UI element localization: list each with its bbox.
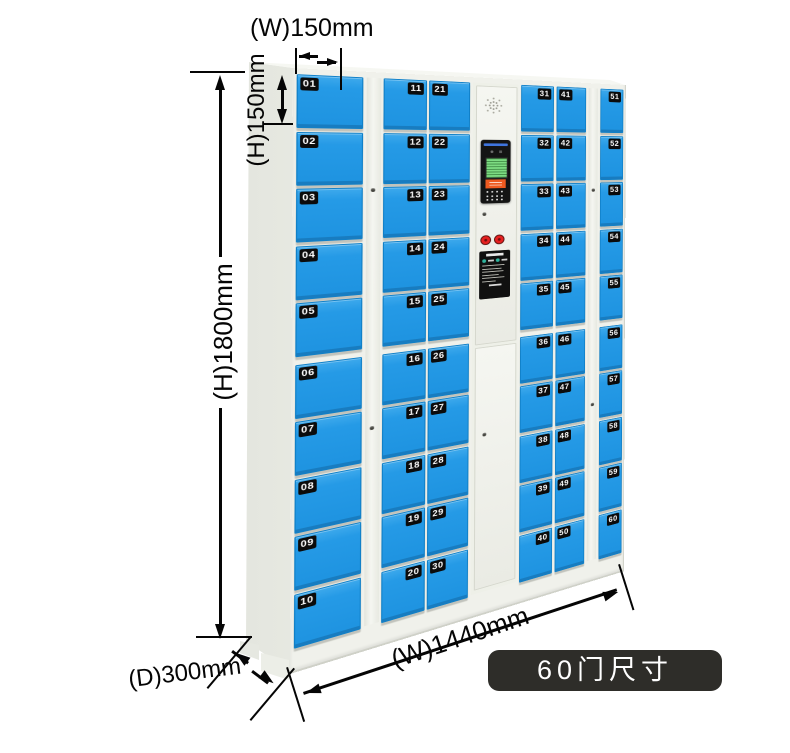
- locker-door-11: 11: [383, 78, 427, 130]
- door-number-badge: 08: [298, 478, 316, 495]
- locker-door-60: 60: [598, 509, 621, 559]
- door-number-badge: 18: [406, 458, 422, 473]
- door-number-badge: 42: [559, 138, 572, 149]
- door-number-badge: 31: [538, 88, 552, 100]
- door-number-badge: 57: [607, 373, 619, 386]
- door-column-21-30: 21222324252627282930: [427, 80, 470, 608]
- door-number-badge: 03: [300, 191, 318, 204]
- caption-badge: 60门尺寸: [488, 650, 722, 691]
- control-bay: [471, 83, 519, 596]
- locker-door-42: 42: [556, 135, 586, 181]
- arrow-up-icon: [277, 72, 287, 90]
- locker-door-24: 24: [428, 237, 469, 289]
- door-number-badge: 10: [298, 592, 316, 610]
- locker-door-19: 19: [381, 507, 425, 568]
- lcd-screen: [486, 157, 508, 178]
- door-number-badge: 24: [432, 241, 448, 254]
- locker-door-35: 35: [520, 281, 553, 331]
- door-number-badge: 44: [559, 234, 572, 246]
- door-number-badge: 07: [299, 422, 317, 438]
- door-number-badge: 11: [408, 82, 424, 95]
- door-column-51-60: 51525354555657585960: [598, 89, 623, 558]
- door-number-badge: 39: [536, 482, 550, 496]
- locker-door-12: 12: [383, 133, 427, 184]
- arrow-right-icon: [602, 586, 622, 601]
- door-number-badge: 52: [608, 138, 620, 149]
- door-number-badge: 41: [559, 89, 572, 100]
- orange-scanner: [485, 179, 505, 188]
- keyhole-icon: [592, 188, 595, 191]
- door-number-badge: 21: [432, 83, 448, 96]
- dim-tick: [196, 636, 252, 638]
- locker-door-33: 33: [521, 184, 554, 231]
- door-number-badge: 20: [405, 564, 421, 580]
- locker-door-28: 28: [427, 446, 468, 504]
- locker-door-44: 44: [556, 230, 586, 277]
- door-number-badge: 29: [430, 505, 446, 521]
- control-upper-door: [475, 85, 518, 345]
- arrow-right-icon: [327, 58, 341, 66]
- door-number-badge: 51: [609, 91, 621, 102]
- locker-door-59: 59: [599, 463, 622, 512]
- door-number-badge: 38: [536, 433, 550, 447]
- keyhole-icon: [591, 403, 594, 407]
- door-column-31-40: 31323334353637383940: [519, 85, 554, 581]
- door-number-badge: 27: [431, 401, 447, 415]
- locker-door-32: 32: [521, 135, 554, 182]
- door-number-badge: 59: [607, 466, 619, 479]
- door-number-badge: 49: [558, 477, 571, 491]
- door-number-badge: 53: [608, 185, 620, 196]
- door-number-badge: 34: [537, 235, 551, 247]
- door-column-11-20: 11121314151617181920: [381, 78, 427, 621]
- filler-strip-left: [364, 78, 381, 627]
- locker-door-37: 37: [520, 381, 553, 433]
- control-lower-door: [474, 343, 517, 591]
- locker-door-46: 46: [555, 329, 585, 378]
- door-number-badge: 28: [431, 453, 447, 468]
- dim-door-height-label: (H)150mm: [243, 50, 269, 170]
- dim-cabinet-height-label: (H)1800mm: [208, 262, 236, 402]
- locker-door-30: 30: [427, 549, 468, 609]
- arrow-up-icon: [215, 72, 225, 90]
- door-number-badge: 37: [536, 384, 550, 397]
- dim-line: [219, 85, 222, 257]
- keyhole-icon: [371, 188, 376, 192]
- locker-door-23: 23: [428, 185, 469, 235]
- locker-door-02: 02: [296, 131, 363, 185]
- brand-logo-strip: [484, 143, 508, 146]
- locker-door-53: 53: [600, 182, 623, 227]
- door-number-badge: 50: [557, 525, 570, 539]
- locker-door-55: 55: [599, 275, 622, 321]
- locker-door-54: 54: [600, 228, 623, 273]
- door-number-badge: 54: [608, 231, 620, 242]
- door-number-badge: 09: [298, 535, 316, 552]
- speaker-grille-icon: [493, 105, 495, 107]
- door-number-badge: 12: [408, 136, 424, 148]
- door-number-badge: 46: [558, 333, 571, 346]
- locker-door-40: 40: [519, 527, 552, 582]
- locker-door-07: 07: [295, 412, 362, 477]
- door-number-badge: 13: [407, 189, 423, 201]
- locker-door-13: 13: [383, 186, 427, 238]
- door-number-badge: 14: [407, 242, 423, 255]
- locker-door-15: 15: [382, 292, 426, 347]
- keypad-dots-icon: [486, 191, 505, 202]
- arrow-down-icon: [277, 109, 287, 127]
- locker-door-38: 38: [519, 430, 552, 483]
- locker-door-17: 17: [382, 401, 426, 459]
- dim-line: [219, 408, 222, 626]
- dim-door-width-label: (W)150mm: [250, 14, 374, 43]
- locker-door-39: 39: [519, 478, 552, 532]
- locker-door-21: 21: [429, 80, 470, 130]
- door-number-badge: 02: [300, 134, 318, 147]
- door-number-badge: 55: [608, 277, 620, 289]
- instruction-label: [479, 250, 510, 300]
- locker-door-18: 18: [382, 454, 426, 514]
- door-number-badge: 23: [432, 188, 448, 200]
- door-number-badge: 45: [558, 282, 571, 294]
- door-number-badge: 47: [558, 381, 571, 394]
- door-number-badge: 43: [559, 186, 572, 197]
- camera-icon: [490, 150, 493, 153]
- locker-door-04: 04: [296, 242, 363, 299]
- locker-door-36: 36: [520, 333, 553, 384]
- locker-door-22: 22: [429, 133, 470, 183]
- door-number-badge: 01: [300, 77, 318, 91]
- door-number-badge: 17: [406, 405, 422, 420]
- door-number-badge: 15: [407, 295, 423, 309]
- keyhole-icon: [370, 426, 375, 431]
- locker-door-45: 45: [556, 278, 586, 326]
- door-column-01-10: 01020304050607080910: [294, 74, 364, 647]
- control-panel: [480, 140, 510, 204]
- locker-door-49: 49: [555, 471, 585, 523]
- locker-door-57: 57: [599, 370, 622, 418]
- locker-door-47: 47: [555, 376, 585, 426]
- door-number-badge: 35: [537, 283, 551, 295]
- locker-door-05: 05: [295, 298, 362, 358]
- dim-tick: [619, 564, 635, 610]
- sensor-icon: [499, 150, 502, 153]
- door-number-badge: 19: [406, 511, 422, 527]
- locker-door-48: 48: [555, 424, 585, 475]
- door-number-badge: 60: [607, 512, 619, 526]
- locker-door-03: 03: [296, 187, 363, 242]
- door-number-badge: 26: [431, 349, 447, 363]
- locker-door-43: 43: [556, 183, 586, 229]
- door-number-badge: 16: [406, 352, 422, 366]
- locker-door-51: 51: [600, 89, 623, 133]
- door-number-badge: 40: [536, 530, 550, 545]
- locker-door-27: 27: [427, 395, 468, 451]
- arrow-down-icon: [215, 624, 225, 642]
- door-number-badge: 06: [299, 365, 317, 380]
- locker-door-25: 25: [428, 288, 469, 341]
- arrow-left-icon: [301, 684, 321, 699]
- door-column-41-50: 41424344454647484950: [555, 87, 587, 571]
- locker-door-58: 58: [599, 416, 622, 465]
- keyhole-icon: [482, 432, 486, 436]
- door-number-badge: 33: [537, 186, 551, 197]
- locker-door-50: 50: [555, 519, 585, 572]
- locker-door-52: 52: [600, 136, 623, 180]
- locker-door-14: 14: [383, 239, 427, 292]
- locker-door-16: 16: [382, 348, 426, 405]
- door-number-badge: 48: [558, 429, 571, 443]
- locker-door-26: 26: [428, 343, 469, 398]
- arrow-left-icon: [296, 52, 310, 60]
- cabinet-front-face: 01020304050607080910 1112131415161718192…: [290, 68, 626, 674]
- door-number-badge: 36: [537, 335, 551, 348]
- door-number-badge: 56: [608, 327, 620, 339]
- door-number-badge: 22: [432, 136, 448, 148]
- locker-door-01: 01: [296, 74, 363, 129]
- filler-strip-right: [587, 88, 598, 561]
- locker-door-41: 41: [556, 87, 586, 133]
- door-number-badge: 05: [299, 304, 317, 319]
- locker-door-31: 31: [521, 85, 554, 132]
- door-number-badge: 25: [431, 293, 447, 306]
- locker-door-56: 56: [599, 324, 622, 371]
- door-number-badge: 30: [430, 558, 446, 574]
- door-number-badge: 04: [299, 248, 317, 262]
- locker-door-34: 34: [520, 232, 553, 280]
- door-number-badge: 58: [607, 419, 619, 432]
- locker-door-29: 29: [427, 498, 468, 557]
- locker-door-20: 20: [381, 560, 425, 623]
- locker-door-06: 06: [295, 356, 362, 418]
- door-number-badge: 32: [537, 137, 551, 148]
- locker-dimension-diagram: 01020304050607080910 1112131415161718192…: [0, 0, 790, 753]
- dim-tick: [340, 48, 342, 90]
